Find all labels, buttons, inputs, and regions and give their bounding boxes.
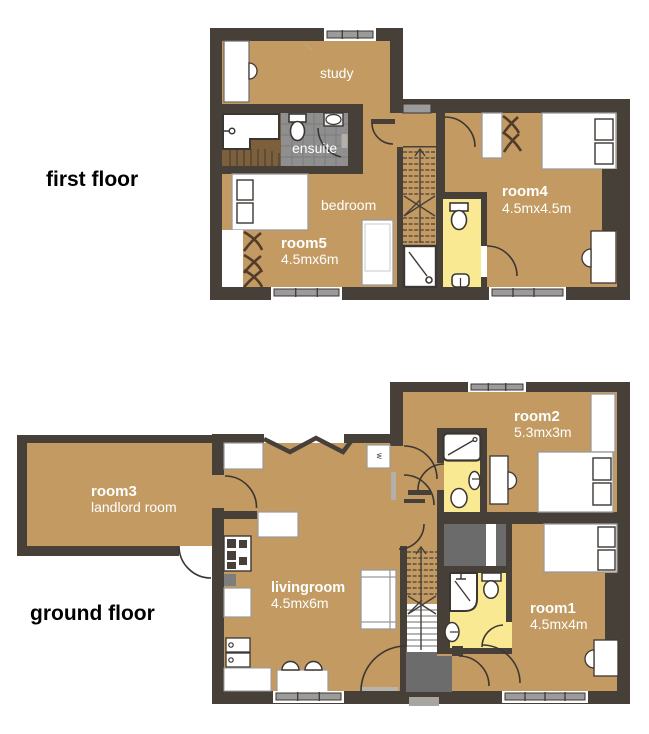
svg-text:ensuite: ensuite [292, 140, 337, 156]
svg-text:room2: room2 [514, 408, 560, 425]
svg-text:study: study [320, 65, 353, 81]
svg-text:room3: room3 [91, 483, 137, 500]
svg-text:4.5mx4m: 4.5mx4m [530, 616, 588, 632]
svg-text:bedroom: bedroom [321, 197, 376, 213]
svg-text:room4: room4 [502, 183, 549, 200]
svg-text:5.3mx3m: 5.3mx3m [514, 424, 572, 440]
svg-text:4.5mx4.5m: 4.5mx4.5m [502, 200, 571, 216]
svg-text:room1: room1 [530, 600, 576, 617]
svg-text:4.5mx6m: 4.5mx6m [271, 595, 329, 611]
svg-text:first floor: first floor [46, 168, 138, 191]
svg-text:livingroom: livingroom [271, 580, 345, 596]
svg-text:ground floor: ground floor [30, 602, 155, 625]
svg-text:w: w [375, 452, 384, 459]
svg-text:room5: room5 [281, 235, 327, 252]
svg-text:4.5mx6m: 4.5mx6m [281, 251, 339, 267]
svg-text:landlord room: landlord room [91, 499, 177, 515]
